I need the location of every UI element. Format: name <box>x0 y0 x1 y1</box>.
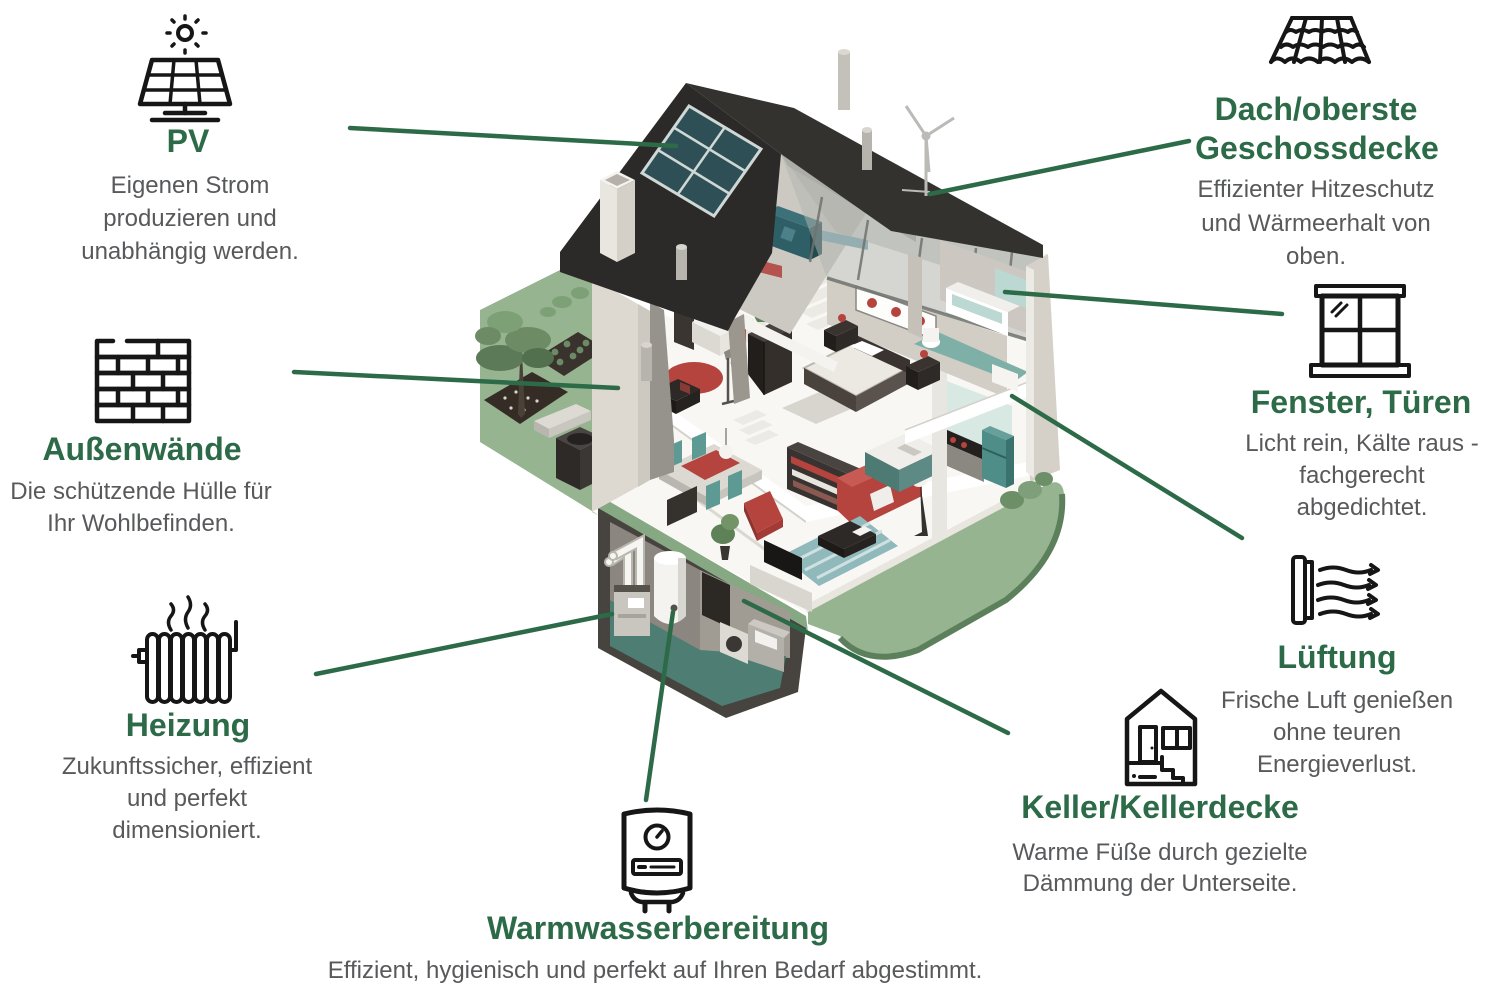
svg-text:ohne teuren: ohne teuren <box>1273 719 1401 746</box>
svg-text:abgedichtet.: abgedichtet. <box>1297 494 1428 521</box>
svg-text:Die schützende Hülle für: Die schützende Hülle für <box>10 478 271 505</box>
svg-text:produzieren und: produzieren und <box>103 205 276 232</box>
svg-text:Außenwände: Außenwände <box>42 431 241 467</box>
svg-text:Geschossdecke: Geschossdecke <box>1195 130 1439 166</box>
svg-text:Heizung: Heizung <box>126 707 250 743</box>
svg-text:Licht rein, Kälte raus -: Licht rein, Kälte raus - <box>1245 430 1478 457</box>
svg-text:oben.: oben. <box>1286 243 1346 270</box>
svg-text:Effizient, hygienisch und perf: Effizient, hygienisch und perfekt auf Ih… <box>328 957 983 984</box>
svg-text:fachgerecht: fachgerecht <box>1299 462 1425 489</box>
svg-text:Frische Luft genießen: Frische Luft genießen <box>1221 687 1453 714</box>
svg-text:Warme Füße durch gezielte: Warme Füße durch gezielte <box>1012 839 1307 866</box>
svg-text:Energieverlust.: Energieverlust. <box>1257 751 1417 778</box>
svg-text:Dach/oberste: Dach/oberste <box>1215 91 1418 127</box>
svg-text:Effizienter Hitzeschutz: Effizienter Hitzeschutz <box>1198 176 1435 203</box>
svg-text:Keller/Kellerdecke: Keller/Kellerdecke <box>1021 789 1299 825</box>
svg-text:PV: PV <box>167 123 210 159</box>
svg-text:Warmwasserbereitung: Warmwasserbereitung <box>487 910 829 946</box>
svg-text:dimensioniert.: dimensioniert. <box>112 817 261 844</box>
svg-text:Ihr Wohlbefinden.: Ihr Wohlbefinden. <box>47 510 235 537</box>
svg-text:unabhängig werden.: unabhängig werden. <box>81 238 299 265</box>
svg-text:und Wärmeerhalt von: und Wärmeerhalt von <box>1201 210 1430 237</box>
svg-text:Eigenen Strom: Eigenen Strom <box>111 172 270 199</box>
svg-text:Lüftung: Lüftung <box>1277 639 1396 675</box>
svg-text:Dämmung der Unterseite.: Dämmung der Unterseite. <box>1023 870 1298 897</box>
svg-text:und perfekt: und perfekt <box>127 785 247 812</box>
svg-text:Fenster, Türen: Fenster, Türen <box>1251 384 1472 420</box>
svg-text:Zukunftssicher, effizient: Zukunftssicher, effizient <box>62 753 313 780</box>
